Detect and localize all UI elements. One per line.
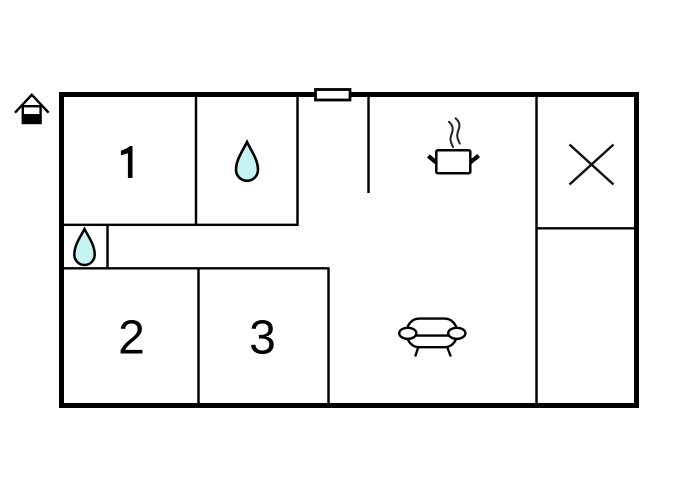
svg-text:3: 3	[249, 312, 276, 365]
svg-text:2: 2	[118, 312, 145, 365]
